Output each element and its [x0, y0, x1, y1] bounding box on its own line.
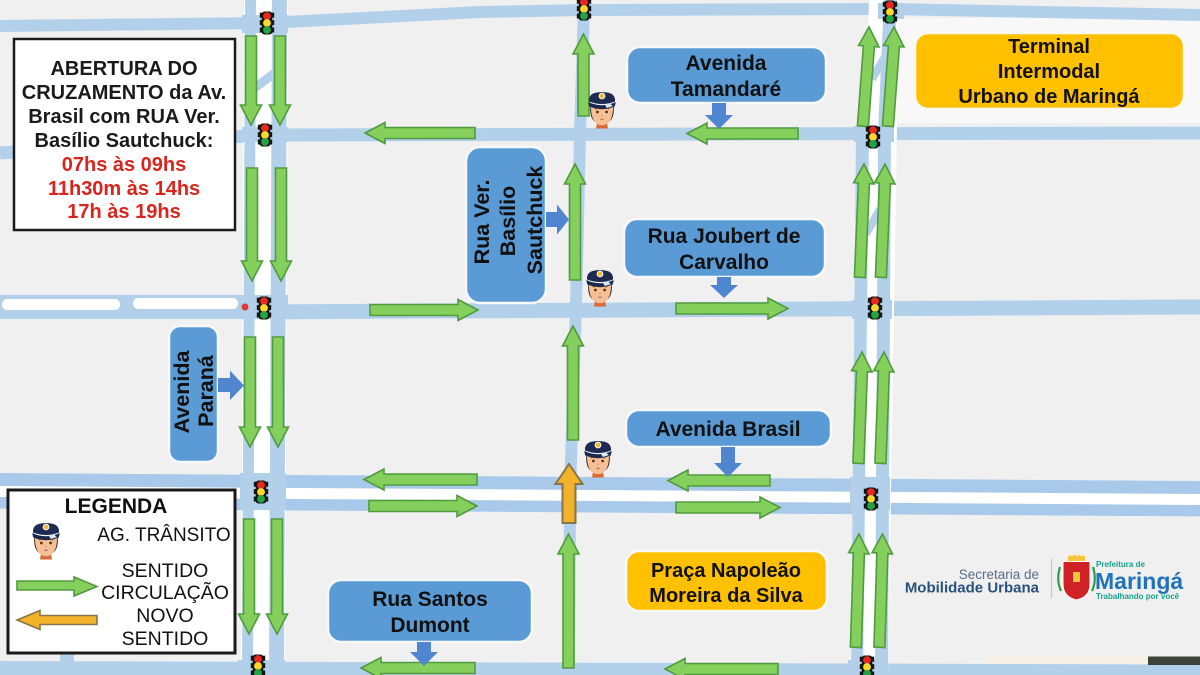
svg-text:AG. TRÂNSITO: AG. TRÂNSITO: [97, 524, 230, 546]
svg-text:Rua Joubert de: Rua Joubert de: [648, 225, 801, 248]
svg-text:Mobilidade Urbana: Mobilidade Urbana: [905, 580, 1040, 597]
svg-text:CRUZAMENTO da Av.: CRUZAMENTO da Av.: [22, 82, 226, 104]
svg-text:ABERTURA DO: ABERTURA DO: [50, 58, 197, 80]
svg-text:17h às 19hs: 17h às 19hs: [67, 201, 180, 223]
svg-text:Urbano de Maringá: Urbano de Maringá: [958, 86, 1140, 108]
svg-text:Brasil com RUA Ver.: Brasil com RUA Ver.: [28, 106, 220, 128]
svg-text:07hs às 09hs: 07hs às 09hs: [62, 154, 187, 176]
svg-text:Tamandaré: Tamandaré: [671, 78, 782, 101]
svg-text:Avenida: Avenida: [170, 350, 194, 434]
svg-text:Dumont: Dumont: [390, 614, 469, 637]
svg-text:CIRCULAÇÃO: CIRCULAÇÃO: [101, 580, 229, 604]
svg-text:Paraná: Paraná: [194, 354, 218, 427]
svg-text:Basílio: Basílio: [496, 186, 520, 257]
svg-text:Rua Santos: Rua Santos: [372, 588, 488, 611]
svg-text:Rua Ver.: Rua Ver.: [470, 180, 494, 265]
svg-text:Maringá: Maringá: [1095, 568, 1183, 594]
svg-text:Avenida: Avenida: [686, 52, 767, 75]
svg-text:Intermodal: Intermodal: [998, 61, 1100, 83]
svg-text:Carvalho: Carvalho: [679, 251, 769, 274]
svg-text:SENTIDO: SENTIDO: [122, 628, 209, 650]
svg-text:Sautchuck: Sautchuck: [523, 166, 547, 275]
svg-text:Avenida Brasil: Avenida Brasil: [655, 418, 800, 441]
svg-text:Moreira da Silva: Moreira da Silva: [649, 585, 803, 607]
svg-text:LEGENDA: LEGENDA: [65, 495, 168, 518]
svg-text:SENTIDO: SENTIDO: [122, 560, 209, 582]
svg-text:11h30m às 14hs: 11h30m às 14hs: [48, 178, 200, 200]
svg-text:Trabalhando por você: Trabalhando por você: [1096, 592, 1180, 601]
svg-text:Basílio Sautchuck:: Basílio Sautchuck:: [35, 130, 214, 152]
svg-text:Praça Napoleão: Praça Napoleão: [651, 560, 801, 582]
svg-text:Terminal: Terminal: [1008, 36, 1090, 58]
svg-text:NOVO: NOVO: [136, 605, 193, 627]
